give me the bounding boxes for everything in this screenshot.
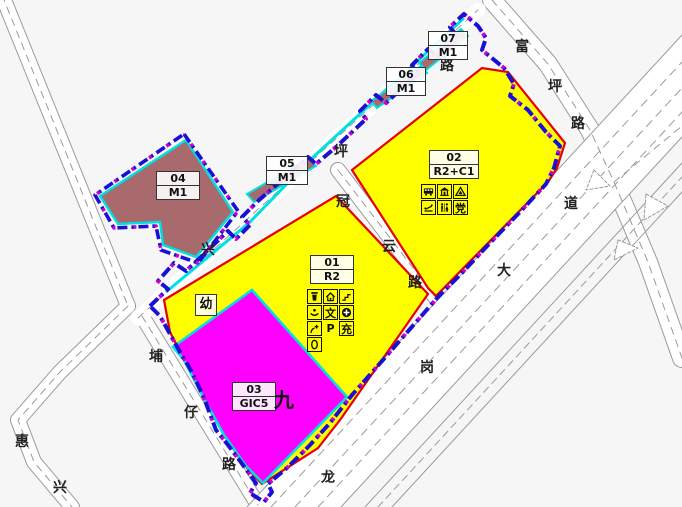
parcel-02-code: R2+C1 bbox=[430, 165, 478, 178]
party-service-icon: 党 bbox=[453, 200, 468, 215]
parcel-01-number: 01 bbox=[311, 256, 353, 270]
road-label-longgang-4: 道 bbox=[564, 193, 578, 213]
smiley-icon bbox=[307, 305, 322, 320]
parcel-03-label: 03 GIC5 bbox=[232, 382, 276, 411]
road-label-guanyun-2: 云 bbox=[382, 236, 396, 256]
planning-map: 01 R2 02 R2+C1 03 GIC5 04 M1 05 M1 06 M1… bbox=[0, 0, 682, 507]
map-canvas bbox=[0, 0, 682, 507]
road-label-guanyun-1: 冠 bbox=[336, 191, 350, 211]
triangle-icon bbox=[453, 184, 468, 199]
road-label-huixing-1: 惠 bbox=[15, 431, 29, 451]
road-label-huixing-2: 兴 bbox=[53, 477, 67, 497]
road-label-fuping-2: 坪 bbox=[548, 76, 562, 96]
parcel-03-code: GIC5 bbox=[233, 397, 275, 410]
toilet-icon bbox=[437, 200, 452, 215]
parcel-02-facility-icons: 党 bbox=[421, 184, 468, 216]
road-label-guanyun-3: 路 bbox=[408, 272, 422, 292]
road-label-fuping-3: 路 bbox=[571, 113, 585, 133]
parcel-06-number: 06 bbox=[387, 68, 425, 82]
slope-icon bbox=[339, 289, 354, 304]
parcel-03-number: 03 bbox=[233, 383, 275, 397]
kindergarten-marker: 幼 bbox=[195, 294, 217, 316]
parcel-04-label: 04 M1 bbox=[156, 171, 200, 200]
road-label-puzai-1: 埔 bbox=[149, 346, 163, 366]
parcel-07-label: 07 M1 bbox=[428, 31, 468, 60]
pavilion-icon bbox=[437, 184, 452, 199]
parcel-05-code: M1 bbox=[267, 171, 307, 184]
culture-icon: 文 bbox=[323, 305, 338, 320]
oval-icon bbox=[307, 337, 322, 352]
road-label-xingping-2: 坪 bbox=[334, 141, 348, 161]
trash-bin-icon bbox=[307, 289, 322, 304]
school-nine-annotation: 九 bbox=[274, 384, 294, 413]
parking-icon: P bbox=[323, 321, 338, 336]
road-label-puzai-2: 仔 bbox=[184, 402, 198, 422]
parcel-02-number: 02 bbox=[430, 151, 478, 165]
home-icon bbox=[323, 289, 338, 304]
road-label-xingping-1: 兴 bbox=[201, 239, 215, 259]
parcel-06-code: M1 bbox=[387, 82, 425, 95]
charging-icon: 充 bbox=[339, 321, 354, 336]
parcel-01-code: R2 bbox=[311, 270, 353, 283]
road-label-fuping-1: 富 bbox=[515, 36, 529, 56]
road-label-longgang-3: 大 bbox=[497, 260, 511, 280]
parcel-05-label: 05 M1 bbox=[266, 156, 308, 185]
medical-plus-circle-icon bbox=[339, 305, 354, 320]
fitness-icon bbox=[421, 200, 436, 215]
parcel-01-facility-icons: 文 P 充 bbox=[307, 289, 354, 353]
clinic-cross-icon bbox=[307, 321, 322, 336]
road-label-longgang-1: 龙 bbox=[321, 467, 335, 487]
parcel-07-number: 07 bbox=[429, 32, 467, 46]
parcel-01-label: 01 R2 bbox=[310, 255, 354, 284]
parcel-05-number: 05 bbox=[267, 157, 307, 171]
road-label-puzai-3: 路 bbox=[222, 454, 236, 474]
parcel-07-code: M1 bbox=[429, 46, 467, 59]
road-label-longgang-2: 岗 bbox=[420, 357, 434, 377]
parcel-06-label: 06 M1 bbox=[386, 67, 426, 96]
parcel-04-code: M1 bbox=[157, 186, 199, 199]
bus-icon bbox=[421, 184, 436, 199]
parcel-04-number: 04 bbox=[157, 172, 199, 186]
parcel-02-label: 02 R2+C1 bbox=[429, 150, 479, 179]
